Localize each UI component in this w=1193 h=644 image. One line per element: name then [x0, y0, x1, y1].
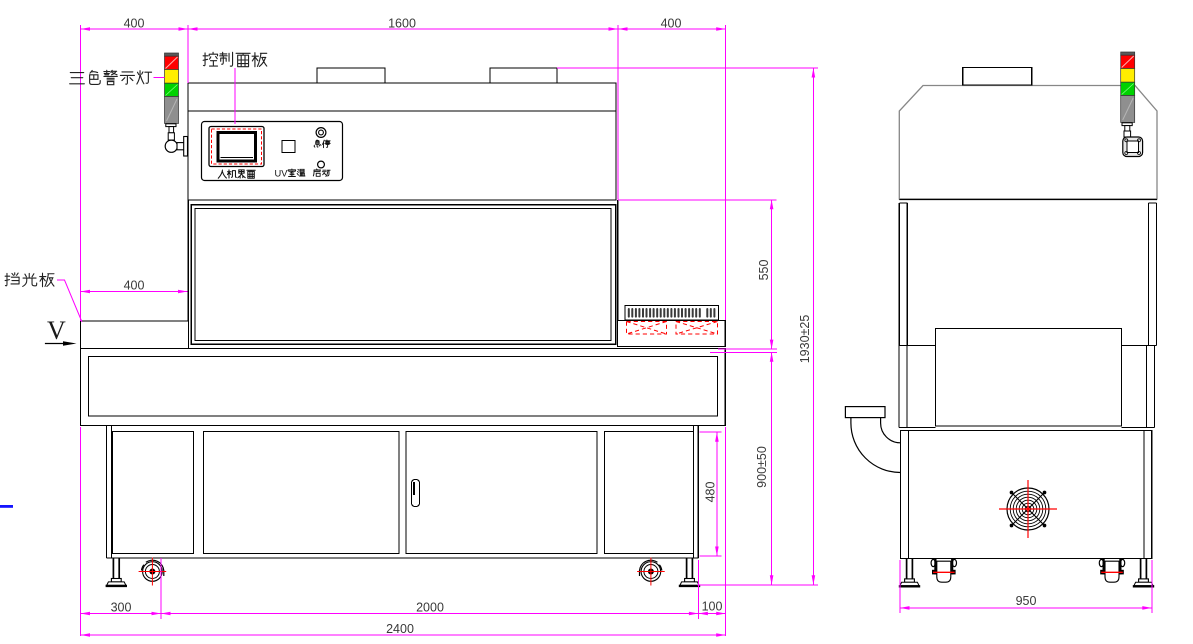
svg-text:400: 400 [124, 16, 145, 30]
svg-text:400: 400 [661, 16, 682, 30]
svg-text:2000: 2000 [416, 600, 444, 614]
svg-text:900±50: 900±50 [755, 446, 769, 488]
svg-text:UV: UV [275, 169, 289, 179]
svg-text:400: 400 [124, 278, 145, 292]
svg-text:550: 550 [757, 260, 771, 281]
svg-text:V: V [47, 316, 66, 345]
svg-text:1930±25: 1930±25 [798, 315, 812, 364]
svg-text:2400: 2400 [386, 622, 414, 636]
svg-text:950: 950 [1016, 594, 1037, 608]
svg-text:300: 300 [111, 600, 132, 614]
svg-text:1600: 1600 [388, 16, 416, 30]
svg-text:480: 480 [704, 482, 718, 503]
svg-text:100: 100 [702, 600, 723, 614]
